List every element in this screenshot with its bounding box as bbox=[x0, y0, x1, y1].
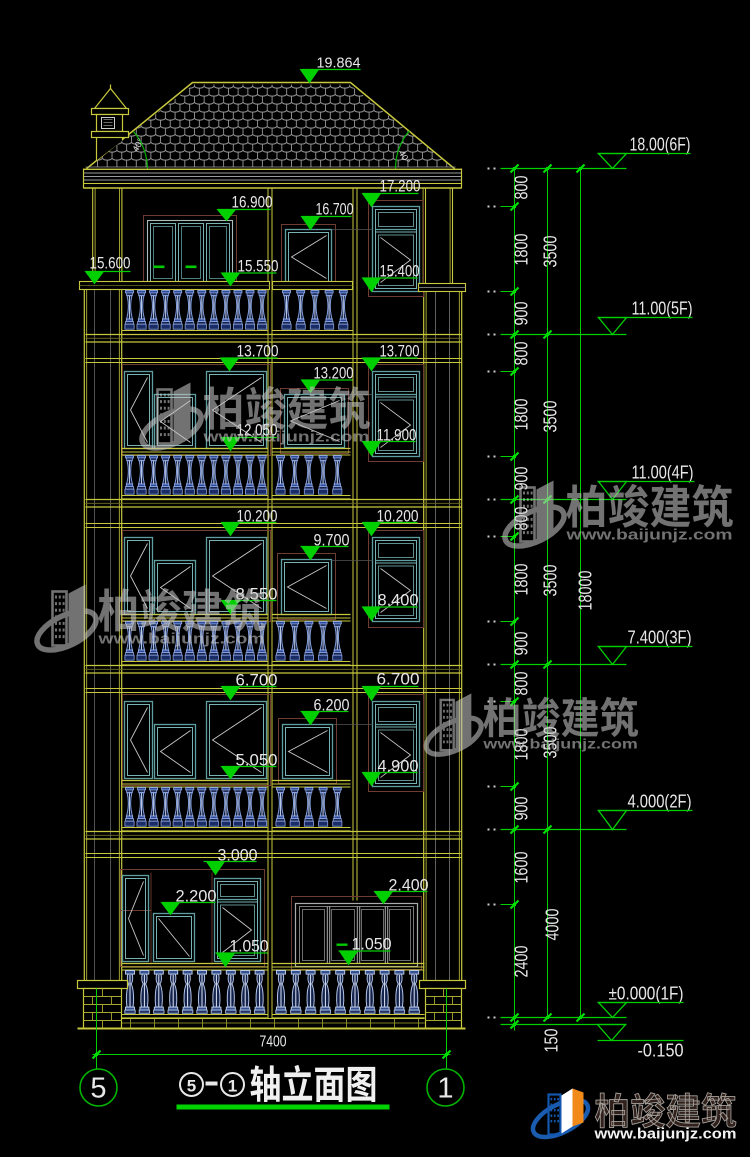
svg-text:-0.150: -0.150 bbox=[638, 1041, 684, 1061]
svg-text:2400: 2400 bbox=[512, 946, 532, 978]
svg-text:800: 800 bbox=[512, 342, 532, 366]
svg-text:3500: 3500 bbox=[541, 565, 561, 597]
svg-text:17.200: 17.200 bbox=[380, 178, 421, 196]
svg-text:www.baijunjz.com: www.baijunjz.com bbox=[593, 1126, 736, 1143]
svg-text:800: 800 bbox=[512, 672, 532, 696]
svg-text:150: 150 bbox=[542, 1029, 562, 1053]
svg-text:5: 5 bbox=[187, 1077, 196, 1096]
svg-text:16.900: 16.900 bbox=[232, 194, 273, 212]
svg-text:7.400(3F): 7.400(3F) bbox=[628, 628, 692, 648]
svg-text:3500: 3500 bbox=[541, 236, 561, 268]
svg-text:900: 900 bbox=[512, 797, 532, 821]
svg-text:5: 5 bbox=[90, 1073, 106, 1105]
svg-text:1800: 1800 bbox=[512, 564, 532, 596]
svg-text:1800: 1800 bbox=[512, 234, 532, 266]
svg-text:15.600: 15.600 bbox=[90, 255, 131, 273]
svg-text:11.00(4F): 11.00(4F) bbox=[632, 463, 694, 483]
svg-text:800: 800 bbox=[512, 176, 532, 200]
svg-text:16.700: 16.700 bbox=[316, 201, 354, 219]
svg-text:7400: 7400 bbox=[260, 1034, 287, 1051]
svg-text:900: 900 bbox=[512, 302, 532, 326]
svg-text:4.000(2F): 4.000(2F) bbox=[628, 792, 692, 812]
svg-text:1800: 1800 bbox=[512, 399, 532, 431]
svg-text:±0.000(1F): ±0.000(1F) bbox=[609, 984, 684, 1004]
svg-text:1: 1 bbox=[437, 1073, 453, 1105]
svg-text:6.700: 6.700 bbox=[377, 671, 420, 689]
svg-text:18000: 18000 bbox=[576, 571, 596, 611]
svg-text:3500: 3500 bbox=[541, 401, 561, 433]
svg-text:11.00(5F): 11.00(5F) bbox=[632, 299, 693, 319]
svg-text:900: 900 bbox=[512, 632, 532, 656]
svg-text:1600: 1600 bbox=[512, 852, 532, 884]
svg-text:1: 1 bbox=[228, 1077, 237, 1096]
svg-text:18.00(6F): 18.00(6F) bbox=[630, 135, 691, 155]
svg-text:4000: 4000 bbox=[543, 909, 563, 941]
